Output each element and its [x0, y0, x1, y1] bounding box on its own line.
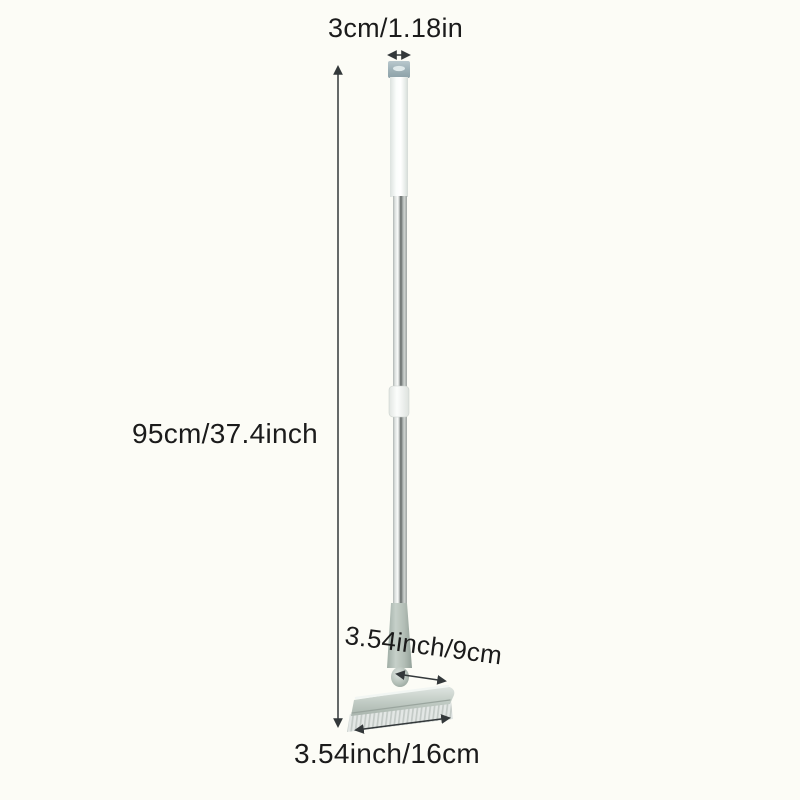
- pole-connector-collar: [389, 386, 409, 417]
- swivel-joint: [391, 667, 409, 687]
- broom-illustration: [0, 0, 800, 800]
- head-width-label: 3.54inch/16cm: [294, 738, 480, 770]
- total-length-label: 95cm/37.4inch: [132, 418, 318, 450]
- handle-grip: [390, 77, 408, 197]
- handle-width-label: 3cm/1.18in: [328, 13, 463, 44]
- hanger-hole: [393, 66, 405, 71]
- product-dimension-image: 3cm/1.18in 95cm/37.4inch 3.54inch/9cm 3.…: [0, 0, 800, 800]
- broom-head: [347, 686, 454, 732]
- broom-handle: [387, 61, 412, 687]
